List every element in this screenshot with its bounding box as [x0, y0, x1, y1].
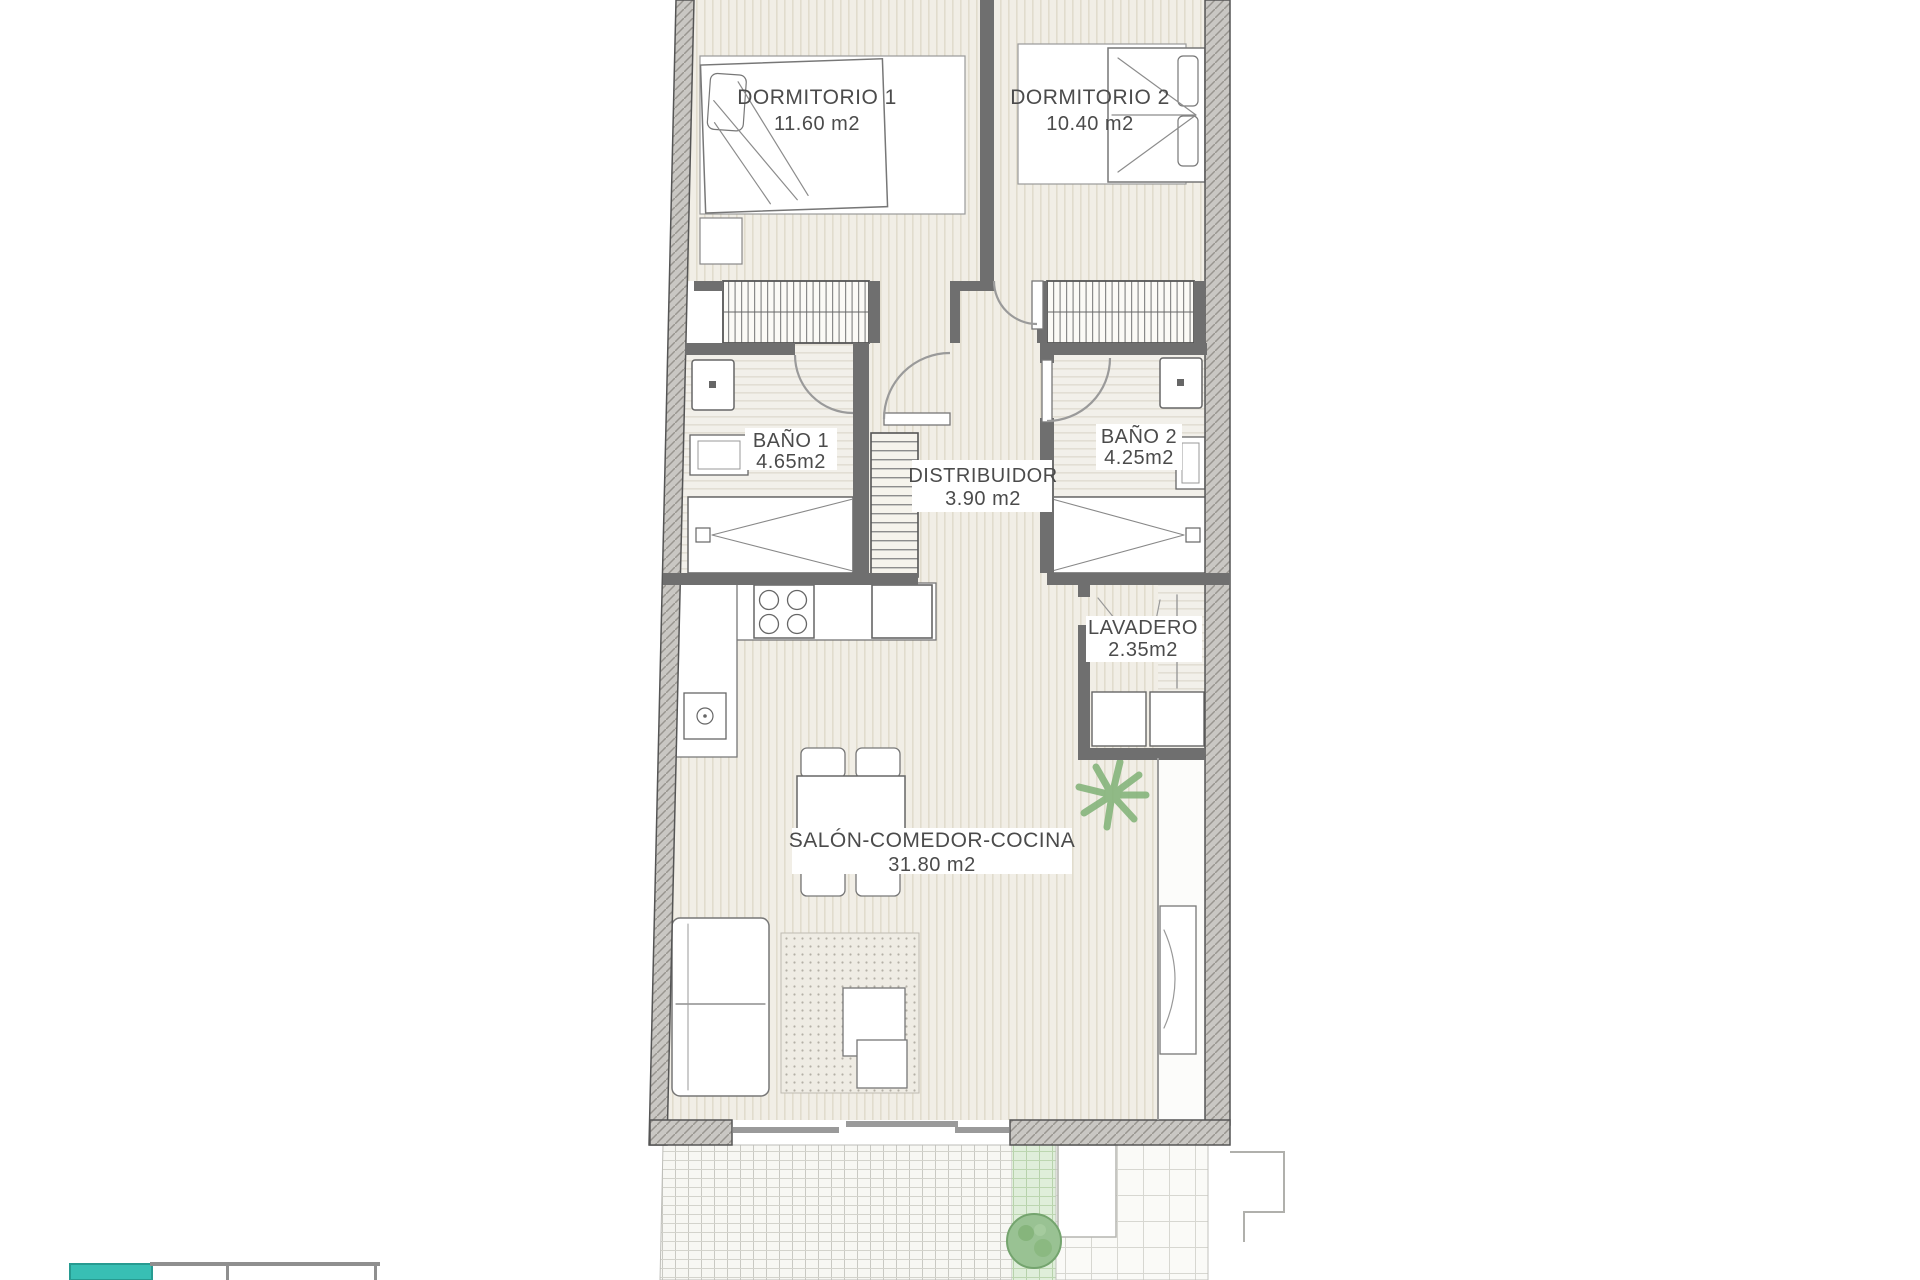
- key-plan-teal-block: [70, 1264, 152, 1280]
- room-area-dormitorio-2: 10.40 m2: [1046, 113, 1133, 135]
- key-plan-divider: [226, 1266, 229, 1280]
- dryer-icon: [1150, 692, 1204, 746]
- key-plan-fragment: [70, 1262, 380, 1280]
- room-label-distribuidor: DISTRIBUIDOR: [908, 465, 1057, 487]
- room-label-bano-1: BAÑO 1: [753, 428, 829, 452]
- room-label-bano-2: BAÑO 2: [1101, 424, 1177, 448]
- exterior-wall-right: [1205, 0, 1230, 1125]
- pillow: [1178, 116, 1198, 166]
- key-plan-outline: [150, 1262, 380, 1266]
- side-table: [857, 1040, 907, 1088]
- bush-icon: [1007, 1214, 1061, 1268]
- terrace-step: [1058, 1145, 1116, 1237]
- chair: [801, 748, 845, 778]
- room-area-lavadero: 2.35m2: [1108, 639, 1178, 661]
- room-label-lavadero: LAVADERO: [1088, 617, 1198, 639]
- exterior-wall-bottom-left: [650, 1120, 732, 1145]
- room-area-dormitorio-1: 11.60 m2: [774, 113, 860, 135]
- shower-tray: [688, 497, 853, 573]
- room-label-dormitorio-1: DORMITORIO 1: [737, 86, 897, 109]
- floor-plan-page: DORMITORIO 1 11.60 m2 DORMITORIO 2 10.40…: [0, 0, 1920, 1280]
- tv-bench: [1160, 906, 1196, 1054]
- key-plan-divider: [374, 1266, 377, 1280]
- room-label-salon: SALÓN-COMEDOR-COCINA: [789, 829, 1076, 852]
- terrace: [660, 1145, 1284, 1280]
- room-area-bano-1: 4.65m2: [756, 451, 826, 473]
- chair: [856, 748, 900, 778]
- terrace-outer-step-outline: [1230, 1152, 1284, 1242]
- bed-dormitorio-1: [701, 59, 888, 213]
- sliding-door: [733, 1121, 1009, 1133]
- floor-plan: DORMITORIO 1 11.60 m2 DORMITORIO 2 10.40…: [0, 0, 1920, 1280]
- fridge-icon: [872, 585, 932, 638]
- washer-icon: [1092, 692, 1146, 746]
- room-area-salon: 31.80 m2: [888, 854, 975, 876]
- room-area-bano-2: 4.25m2: [1104, 447, 1174, 469]
- pillow: [1178, 56, 1198, 106]
- hall-shelving: [871, 433, 918, 577]
- nightstand: [700, 218, 742, 264]
- sofa: [672, 918, 769, 1096]
- exterior-wall-bottom-right: [1010, 1120, 1230, 1145]
- room-area-distribuidor: 3.90 m2: [945, 488, 1021, 510]
- terrace-tiles: [660, 1145, 1012, 1280]
- shower-tray: [1052, 497, 1207, 573]
- room-label-dormitorio-2: DORMITORIO 2: [1010, 86, 1170, 109]
